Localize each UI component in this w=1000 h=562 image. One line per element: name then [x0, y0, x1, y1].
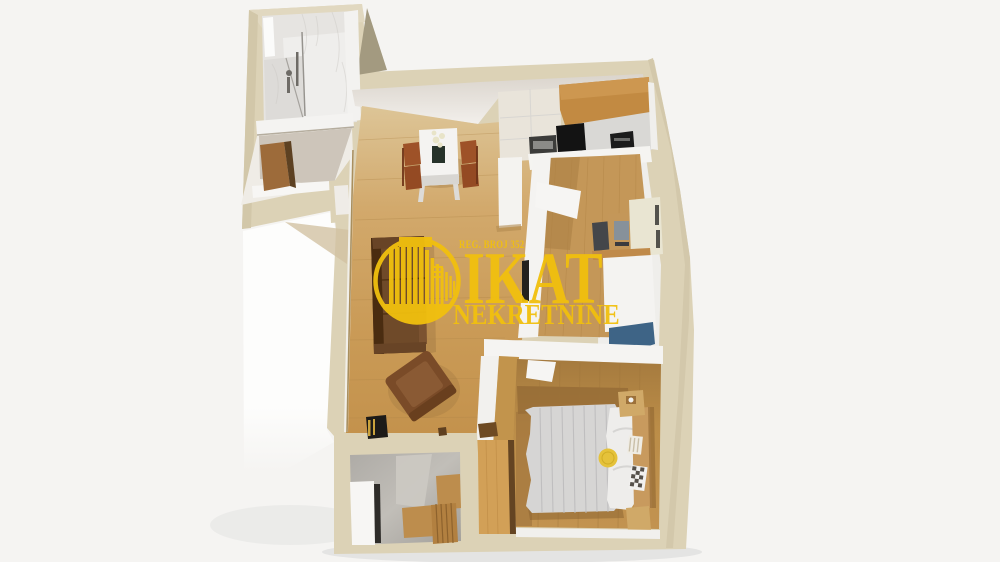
svg-text:NEKRETNINE: NEKRETNINE [453, 298, 620, 330]
